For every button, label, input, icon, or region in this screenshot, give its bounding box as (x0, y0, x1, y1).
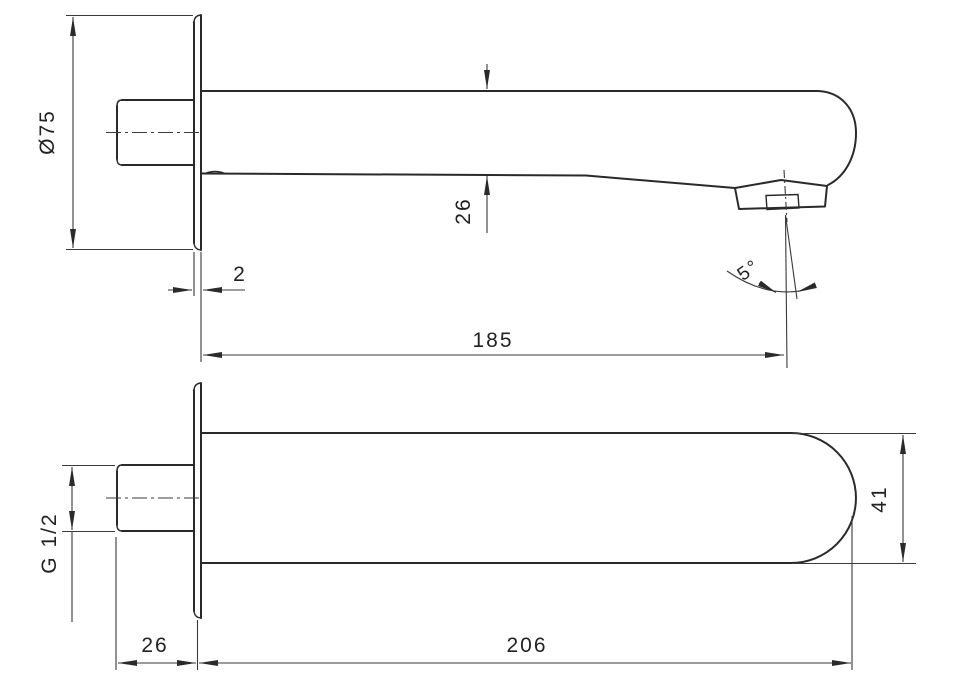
outlet-centerline (784, 170, 787, 222)
dim-label-flange-diameter: Ø75 (36, 109, 59, 155)
dim-label-spout-height: 26 (452, 197, 475, 224)
dim-spout-height: 26 (452, 64, 487, 233)
dim-label-spout-width: 41 (868, 485, 891, 512)
dim-label-thread-length: 26 (141, 634, 168, 657)
spout-body-bottom (201, 433, 856, 563)
dim-thread-size: G 1/2 (38, 466, 115, 623)
angle-annotation: 5° (727, 215, 815, 368)
thread-nipple-bottom (117, 465, 194, 531)
dim-spout-width: 41 (793, 434, 916, 564)
dim-plate-thickness: 2 (168, 252, 247, 362)
aerator-housing (735, 180, 827, 210)
front-view: Ø75 2 26 185 5° (36, 15, 856, 368)
technical-drawing: Ø75 2 26 185 5° (0, 0, 968, 698)
drawing-canvas: Ø75 2 26 185 5° (0, 0, 968, 698)
dim-label-outlet-angle: 5° (734, 256, 764, 286)
flange-plate-bottom (194, 383, 201, 618)
dim-total-length: 206 (199, 516, 852, 670)
bottom-view: G 1/2 26 206 41 (38, 383, 916, 670)
spout-body (201, 91, 856, 188)
thread-nipple (117, 100, 194, 165)
dim-label-total-length: 206 (506, 634, 547, 657)
dim-label-thread-size: G 1/2 (38, 512, 61, 573)
dim-label-plate-thickness: 2 (233, 263, 247, 286)
dim-label-spout-length: 185 (472, 329, 513, 352)
dim-thread-length: 26 (116, 537, 198, 670)
dim-spout-length: 185 (203, 329, 784, 355)
